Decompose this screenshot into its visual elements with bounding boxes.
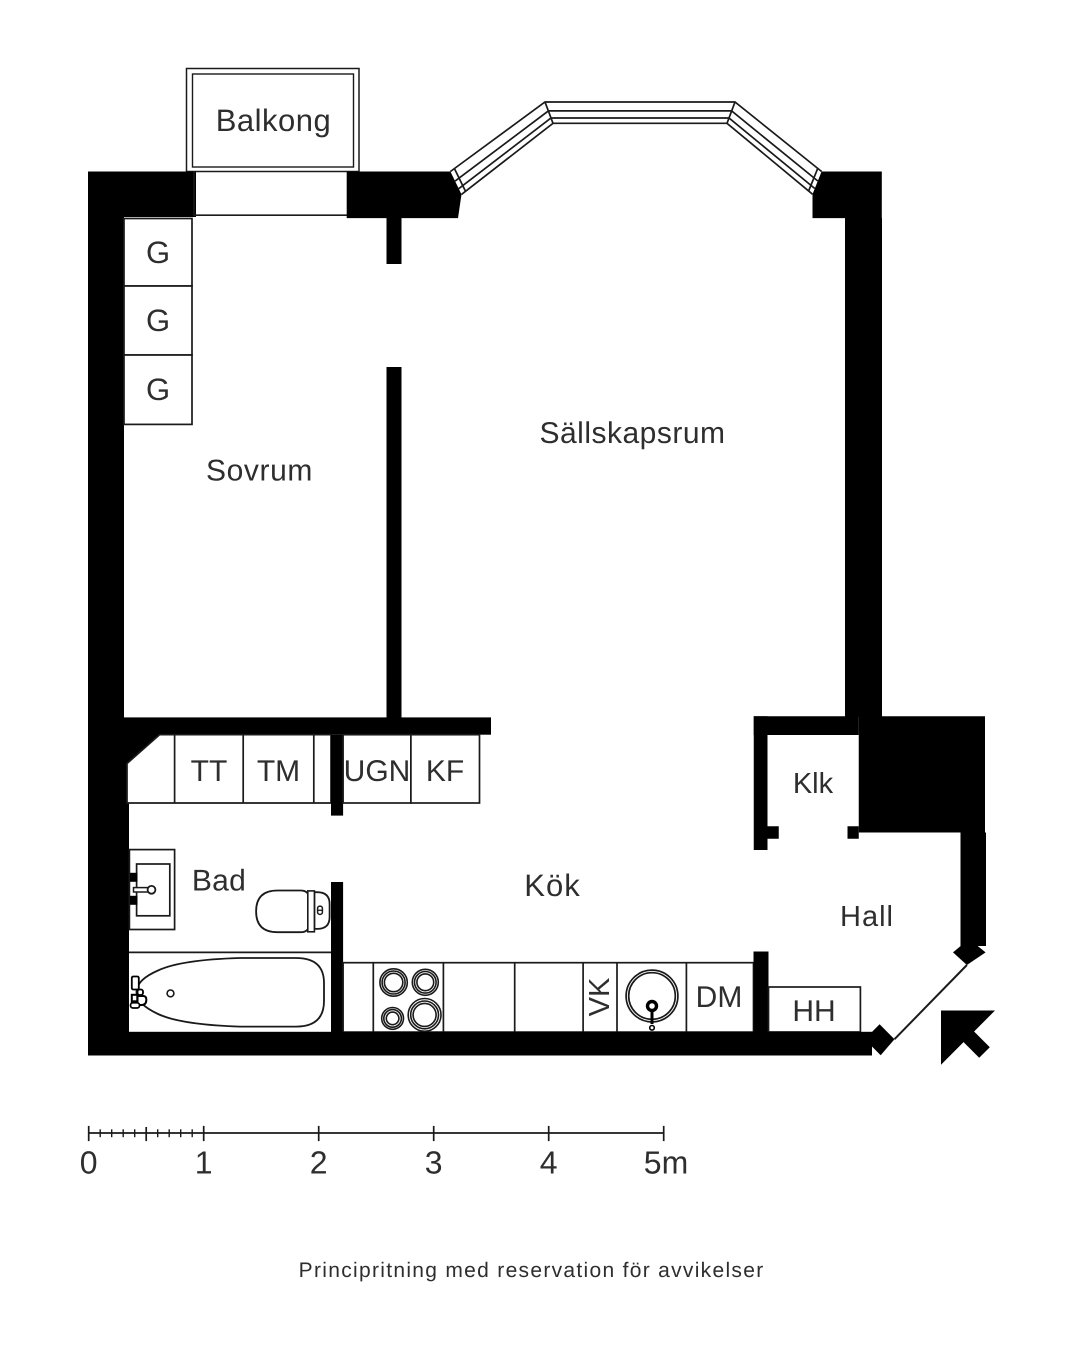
svg-text:G: G bbox=[146, 303, 170, 338]
svg-text:2: 2 bbox=[310, 1145, 328, 1181]
svg-text:DM: DM bbox=[696, 981, 743, 1014]
svg-text:G: G bbox=[146, 372, 170, 407]
svg-text:HH: HH bbox=[792, 995, 835, 1028]
svg-text:4: 4 bbox=[540, 1145, 558, 1181]
svg-text:Sovrum: Sovrum bbox=[206, 455, 313, 488]
svg-text:5m: 5m bbox=[644, 1145, 688, 1181]
svg-text:0: 0 bbox=[80, 1145, 98, 1181]
svg-text:Bad: Bad bbox=[192, 865, 246, 898]
svg-text:3: 3 bbox=[425, 1145, 443, 1181]
svg-text:TM: TM bbox=[257, 755, 300, 788]
svg-text:Klk: Klk bbox=[793, 768, 834, 800]
svg-text:TT: TT bbox=[191, 755, 228, 788]
svg-text:VK: VK bbox=[584, 977, 616, 1016]
svg-text:Hall: Hall bbox=[840, 901, 894, 933]
svg-text:1: 1 bbox=[195, 1145, 213, 1181]
svg-text:KF: KF bbox=[426, 755, 464, 788]
svg-text:Kök: Kök bbox=[524, 868, 580, 903]
svg-text:G: G bbox=[146, 235, 170, 270]
svg-text:Balkong: Balkong bbox=[216, 103, 332, 138]
svg-text:UGN: UGN bbox=[344, 755, 411, 788]
svg-text:Principritning med reservation: Principritning med reservation för avvik… bbox=[299, 1259, 765, 1282]
svg-text:Sällskapsrum: Sällskapsrum bbox=[539, 417, 725, 450]
